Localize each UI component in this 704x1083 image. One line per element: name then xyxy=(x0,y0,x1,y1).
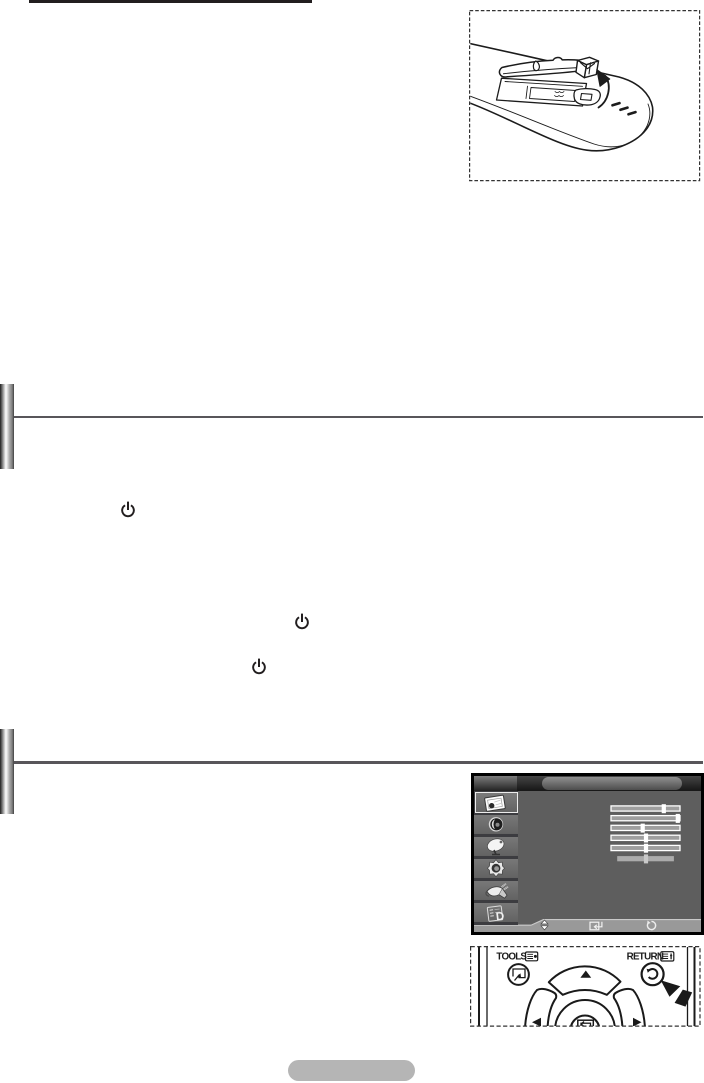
svg-text:RETURN: RETURN xyxy=(627,952,664,963)
svg-text:TOOLS: TOOLS xyxy=(496,952,527,963)
svg-text:D: D xyxy=(495,911,505,924)
